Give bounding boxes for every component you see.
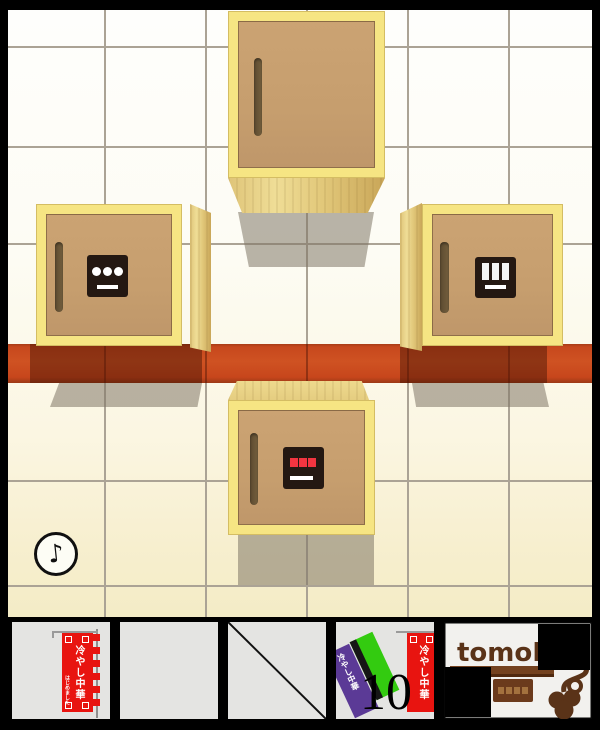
three-bars-icon [475,257,516,298]
top-box-handle [254,58,262,136]
red-square [299,458,307,467]
frame-top [0,0,600,10]
inventory-slot-1[interactable]: 冷やし中華 はじめました [12,622,110,719]
left-box-handle [55,242,63,312]
berry [555,701,574,720]
key-pattern [65,636,72,643]
banner-subtext: はじめました [64,675,69,705]
bar [482,263,489,280]
top-box-face [228,11,385,178]
inventory-slot-3[interactable] [228,622,326,719]
right-box-face [422,204,563,346]
key-pattern [82,702,89,709]
bottom-box-face [228,400,375,535]
top-box-underside [228,178,385,213]
grout-line [8,585,592,587]
inventory-slot-4[interactable]: 冷やし中華 冷やし中華 10 [336,622,434,719]
underline-mark [97,285,118,289]
room-view: ♪ [8,10,592,617]
banner-hook [52,631,54,638]
red-banner-item: 冷やし中華 はじめました [62,633,93,712]
bottom-box-top-side [228,381,375,400]
bar [492,263,499,280]
red-square [308,458,316,467]
left-box-shadow [50,383,202,407]
masked-area [538,624,590,670]
banner-text: 冷やし中華 [417,645,427,700]
plaque-mark [514,687,520,694]
left-box-side [190,204,211,352]
inventory-slot-logo[interactable]: tomoLa [444,622,592,719]
sound-toggle-button[interactable]: ♪ [34,532,78,576]
dot [92,267,101,276]
key-pattern [410,636,417,643]
left-box[interactable] [36,204,211,352]
red-square [290,458,298,467]
top-box[interactable] [228,11,385,213]
key-pattern [82,636,89,643]
bottom-box[interactable] [228,381,375,545]
stripe-grout-tick [306,344,308,383]
left-box-face [36,204,182,346]
right-box-handle [440,242,449,313]
game-screen: ♪ 冷やし中華 はじめました 冷やし中華 [0,0,600,730]
dot [114,267,123,276]
bar [502,263,509,280]
right-box-shadow [412,383,549,407]
right-box[interactable] [400,203,563,351]
three-dots-icon [87,255,128,297]
brand-logo-graphic: tomoLa [444,622,592,719]
underline-mark [485,285,506,289]
right-box-side [400,203,422,351]
diagonal-cross-icon [228,622,326,719]
masked-area [445,667,491,717]
underline-mark [290,476,313,480]
dot [103,267,112,276]
item-count: 10 [360,667,412,719]
key-pattern [426,636,433,643]
inventory-slot-2[interactable] [120,622,218,719]
plaque-mark [506,687,512,694]
bottom-box-handle [250,433,258,505]
three-red-squares-icon [283,447,324,489]
top-box-shadow [238,212,374,267]
music-note-icon: ♪ [47,540,65,567]
banner-text: 冷やし中華 [73,645,83,700]
plaque-mark [522,687,528,694]
plaque-mark [498,687,504,694]
